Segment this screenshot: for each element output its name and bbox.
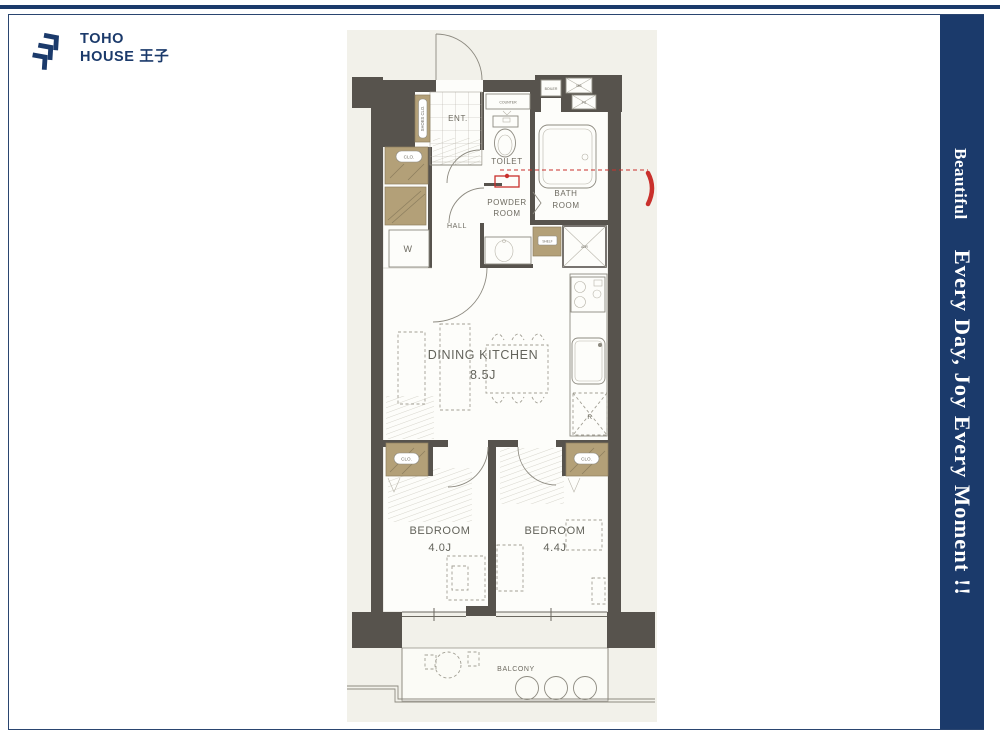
logo-line1: TOHO <box>80 31 169 49</box>
floor-plan: BOILER MB PS ENT. SHOES CLO. CLO. <box>347 30 657 722</box>
bedroom2-label: BEDROOM <box>524 525 585 537</box>
balcony-label: BALCONY <box>497 666 535 673</box>
powder-room-label-2: ROOM <box>493 209 520 218</box>
content-frame: TOHO HOUSE 王子 <box>8 14 984 730</box>
meter-box-label: MB <box>576 84 582 88</box>
bedroom2-size: 4.4J <box>543 542 566 554</box>
slogan-banner: Beautiful Every Day, Joy Every Moment !! <box>940 15 984 729</box>
bedroom1-label: BEDROOM <box>409 525 470 537</box>
balcony-floor <box>402 648 608 701</box>
washer-label: W <box>403 244 412 254</box>
toho-chevrons-icon <box>29 28 73 70</box>
dining-kitchen-size: 8.5J <box>470 368 496 382</box>
banner-text-small: Beautiful <box>951 148 970 220</box>
top-accent-bar <box>0 5 1000 9</box>
slogan-text: Beautiful Every Day, Joy Every Moment !! <box>940 15 984 729</box>
brand-name: TOHO HOUSE 王子 <box>80 31 169 66</box>
shelf-label: SHELF <box>542 240 552 244</box>
dining-kitchen-label: DINING KITCHEN <box>428 348 539 362</box>
toilet-label: TOILET <box>491 157 522 166</box>
counter-label: COUNTER <box>499 101 517 105</box>
adr-label: ADR <box>581 245 588 249</box>
logo-line2: HOUSE 王子 <box>80 49 169 67</box>
bedroom1-size: 4.0J <box>428 542 451 554</box>
banner-text-large: Every Day, Joy Every Moment !! <box>950 250 975 596</box>
bath-room-label-2: ROOM <box>552 201 579 210</box>
refrigerator-label: R <box>587 414 592 421</box>
shoes-closet-label: SHOES CLO. <box>420 106 425 132</box>
pipe-space-label: PS <box>582 101 587 105</box>
bath-room-label-1: BATH <box>554 189 577 198</box>
brand-logo: TOHO HOUSE 王子 <box>29 28 169 70</box>
entrance-label: ENT. <box>448 114 468 123</box>
closet-label-2: CLO. <box>401 457 412 462</box>
closet-label-3: CLO. <box>581 457 592 462</box>
closet-label-1: CLO. <box>404 155 415 160</box>
powder-room-label-1: POWDER <box>487 198 527 207</box>
hall-label: HALL <box>447 223 467 230</box>
boiler-label: BOILER <box>545 87 558 91</box>
